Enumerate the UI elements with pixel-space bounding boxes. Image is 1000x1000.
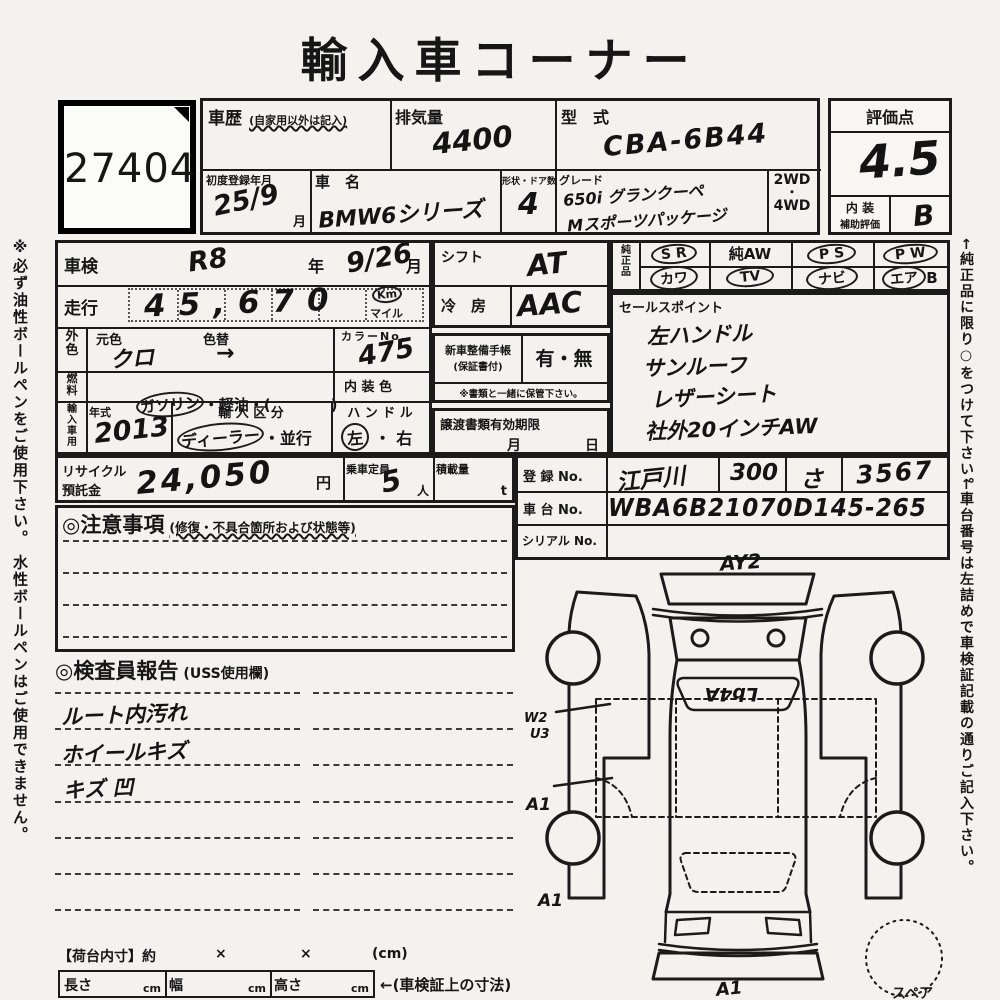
bed-dimensions-line: 【荷台内寸】約 × × (cm) <box>58 946 478 966</box>
drive-4wd: 4WD <box>767 198 817 214</box>
service-book-label-2: (保証書付) <box>435 358 521 373</box>
load-label: 積載量 <box>436 461 469 477</box>
rear-bumper-lip <box>653 609 822 616</box>
registration-row: 登 録 No. 江戸川 300 さ 3567 <box>518 458 947 493</box>
genuine-leather: カワ <box>649 264 699 292</box>
diagram-mark-a1-left-top: A1 <box>524 795 551 815</box>
recycle-cell: リサイクル 預託金 24,050 円 <box>58 458 345 500</box>
registration-block: 登 録 No. 江戸川 300 さ 3567 車 台 No. WBA6B2107… <box>515 455 950 560</box>
inspector-item-2: ホイールキズ <box>61 735 188 769</box>
shift-aircon-box: シフト AT 冷 房 AAC <box>432 240 610 328</box>
inspector-line <box>313 873 513 875</box>
registration-class: 300 <box>730 460 778 486</box>
right-wheel-front <box>871 812 923 864</box>
inspector-line <box>55 837 300 839</box>
mileage-mile-unit: マイル <box>370 305 403 321</box>
fuel-label-cell: 燃料 <box>58 371 88 401</box>
aircon-value: AAC <box>516 285 583 323</box>
recycle-unit: 円 <box>316 472 331 493</box>
sales-point-3: レザーシート <box>650 378 777 415</box>
genuine-navi: ナビ <box>805 264 859 292</box>
genuine-cell-pw: P W <box>873 243 947 268</box>
interior-label-2: 補助評価 <box>831 216 889 231</box>
mileage-row: 走行 Km マイル 45,670 <box>58 285 429 329</box>
genuine-airbag: エア <box>881 264 927 292</box>
body-side-left <box>666 660 677 912</box>
auction-sheet: 輸入車コーナー ※必ず油性ボールペンをご使用下さい。 水性ボールペンはご使用でき… <box>0 0 1000 1000</box>
load-cell: 積載量 t <box>433 458 512 500</box>
keep-note: ※書類と一緒に保管下さい。 <box>435 382 607 400</box>
service-book-value: 有・無 <box>535 348 592 370</box>
genuine-cell-aw: 純AW <box>709 243 793 268</box>
recycle-row: リサイクル 預託金 24,050 円 乗車定員 5 人 積載量 t <box>55 455 515 503</box>
history-note: (自家用以外は記入) <box>249 114 347 127</box>
width-label: 幅 <box>169 975 183 995</box>
import-type-selected: ディーラー <box>176 419 265 454</box>
import-label-cell: 輸入車用 <box>58 401 88 452</box>
exterior-color-label: 外色 <box>65 330 79 359</box>
aircon-label: 冷 房 <box>441 295 486 316</box>
height-label: 高さ <box>274 975 302 995</box>
inspector-line <box>313 764 513 766</box>
model-code-cell: 型 式 CBA-6B44 <box>555 101 821 171</box>
registration-kana: さ <box>800 460 823 494</box>
reg-divider-2 <box>785 458 787 491</box>
chassis-value: WBA6B21070D145-265 <box>608 493 927 522</box>
transfer-docs-label: 譲渡書類有効期限 <box>440 414 540 433</box>
length-cell: 長さ cm <box>60 972 167 996</box>
displacement-label: 排気量 <box>395 104 443 128</box>
diagram-mark-u3: U3 <box>530 727 550 742</box>
diagram-mark-a1-left-bottom: A1 <box>536 891 563 911</box>
left-wheel-front <box>547 812 599 864</box>
reg-divider-1 <box>718 458 720 491</box>
registration-number: 3567 <box>855 455 934 489</box>
first-registration-cell: 初度登録年月 25/9 月 <box>203 169 312 232</box>
genuine-ps: P S <box>807 242 858 266</box>
digit-divider <box>365 290 367 320</box>
sales-points-label: セールスポイント <box>619 297 723 316</box>
handle-cell: ハ ン ド ル 左 ・ 右 <box>331 401 429 452</box>
handle-right: 右 <box>396 429 412 448</box>
rating-label: 評価点 <box>831 101 949 133</box>
rating-score: 4.5 <box>857 130 942 190</box>
transfer-day: 日 <box>585 435 599 455</box>
inspector-line <box>313 728 513 730</box>
body-side-right <box>799 660 810 912</box>
interior-color-label: 内 装 色 <box>344 376 392 395</box>
headlight-right <box>766 918 801 935</box>
right-margin-note-genuine: ←純正品に限り○をつけて下さい。 <box>956 238 976 488</box>
exterior-color-label-cell: 外色 <box>58 327 88 371</box>
genuine-tv: TV <box>725 265 775 289</box>
left-margin-note: ※必ず油性ボールペンをご使用下さい。 水性ボールペンはご使用できません。 <box>10 238 31 798</box>
car-name-label: 車 名 <box>315 171 360 192</box>
shaken-row: 車検 R8 年 9/26 月 <box>58 243 429 287</box>
headlight-left <box>675 918 710 935</box>
trunk-panel <box>670 618 806 660</box>
sales-point-4: 社外20インチAW <box>645 410 818 446</box>
car-name-value: BMW6シリーズ <box>317 191 484 234</box>
capacity-cell: 乗車定員 5 人 <box>343 458 435 500</box>
interior-rating-label-cell: 内 装 補助評価 <box>831 197 891 232</box>
genuine-cell-ps: P S <box>791 243 875 268</box>
handle-label: ハ ン ド ル <box>331 402 429 421</box>
roof-door-lines <box>676 699 778 817</box>
genuine-label: 純正品 <box>621 245 632 278</box>
inspector-item-1: ルート内汚れ <box>61 697 188 731</box>
aircon-divider <box>510 285 512 325</box>
drive-cell: 2WD ・ 4WD <box>767 169 817 232</box>
model-year-cell: 年式 2013 <box>86 401 173 452</box>
import-row: 輸入車用 年式 2013 輸 入 区 分 ディーラー・並行 ハ ン ド ル 左 … <box>58 401 429 452</box>
capacity-unit: 人 <box>417 482 429 499</box>
handle-dot: ・ <box>375 429 391 448</box>
dim-x1: × <box>215 946 227 962</box>
interior-rating-value: B <box>911 198 936 233</box>
inspector-line <box>55 909 300 911</box>
genuine-pw: P W <box>882 242 938 267</box>
vehicle-header-table: 車歴 (自家用以外は記入) 排気量 4400 型 式 CBA-6B44 初度登録… <box>200 98 820 235</box>
colorno-cell-divider <box>333 327 335 371</box>
width-cell: 幅 cm <box>165 972 272 996</box>
handle-selected: 左 <box>340 422 370 452</box>
import-type-options: ディーラー・並行 <box>177 423 312 451</box>
transfer-docs-box: 譲渡書類有効期限 月 日 <box>432 408 610 455</box>
genuine-aw: 純AW <box>729 245 771 263</box>
handle-options: 左 ・ 右 <box>341 423 412 451</box>
diagram-mark-ay2: AY2 <box>717 552 762 576</box>
shaken-month-unit: 月 <box>406 253 422 277</box>
fuel-label: 燃料 <box>66 373 78 397</box>
page-title: 輸入車コーナー <box>290 22 710 91</box>
inspector-line <box>55 873 300 875</box>
base-color-value: クロ <box>109 340 155 375</box>
shift-row: シフト AT <box>435 243 607 287</box>
genuine-sr: S R <box>650 242 697 266</box>
dim-x2: × <box>300 946 312 962</box>
mileage-km-unit: Km <box>371 285 402 305</box>
transfer-month: 月 <box>507 435 521 455</box>
model-code-value: CBA-6B44 <box>602 118 770 163</box>
trunk-detail <box>768 630 784 646</box>
genuine-cell-tv: TV <box>709 266 793 289</box>
height-cell: 高さ cm <box>270 972 373 996</box>
mileage-label: 走行 <box>64 294 98 319</box>
right-margin-note-chassis: ←車台番号は左詰めで車検証記載の通りご記入下さい。 <box>956 478 976 873</box>
import-type-label: 輸 入 区 分 <box>171 402 331 421</box>
rear-bumper <box>661 574 814 604</box>
notes-note: (修復・不具合箇所および状態等) <box>169 520 355 535</box>
sales-points-box: セールスポイント 左ハンドル サンルーフ レザーシート 社外20インチAW <box>610 292 950 455</box>
doors-value: 4 <box>518 187 539 222</box>
displacement-cell: 排気量 4400 <box>390 101 557 171</box>
inspector-line <box>313 909 513 911</box>
load-unit: t <box>501 484 507 499</box>
shaken-label: 車検 <box>64 252 98 277</box>
exterior-color-row: 外色 元色 クロ 色替 → カラーNo. 475 <box>58 327 429 373</box>
length-unit: cm <box>143 982 161 995</box>
height-unit: cm <box>351 982 369 995</box>
notes-line-1 <box>63 540 507 542</box>
reg-divider-3 <box>841 458 843 491</box>
doors-label: 形状・ドア数 <box>502 174 556 187</box>
drive-dot: ・ <box>767 188 817 198</box>
service-book-label-1: 新車整備手帳 <box>435 342 521 358</box>
trunk-detail <box>692 630 708 646</box>
inspector-header: ◎検査員報告 <box>55 659 178 683</box>
shaken-dimensions-note: ←(車検証上の寸法) <box>380 974 511 995</box>
sales-point-2: サンルーフ <box>643 349 748 383</box>
main-left-block: 車検 R8 年 9/26 月 走行 Km マイル 45,670 外色 <box>55 240 432 455</box>
notes-header: ◎注意事項 <box>62 509 164 539</box>
fuel-row: 燃料 ガソリン・軽油・( ) 内 装 色 <box>58 371 429 403</box>
genuine-cell-sr: S R <box>639 243 711 268</box>
interior-label-1: 内 装 <box>831 199 889 216</box>
inspector-line <box>313 692 513 694</box>
inspector-item-3: キズ 凹 <box>62 771 134 805</box>
corner-triangle-icon <box>174 107 189 122</box>
inspector-report: ◎検査員報告 (USS使用欄) ルート内汚れ ホイールキズ キズ 凹 <box>55 655 515 940</box>
import-type-rest: ・並行 <box>264 429 312 448</box>
windshield <box>681 853 796 892</box>
service-book-label-cell: 新車整備手帳 (保証書付) <box>435 336 523 384</box>
notes-line-3 <box>63 604 507 606</box>
service-book-value-cell: 有・無 <box>521 336 607 384</box>
genuine-airbag-b: B <box>926 269 937 287</box>
dimensions-table: 長さ cm 幅 cm 高さ cm <box>58 970 375 998</box>
shift-label: シフト <box>441 247 483 267</box>
car-name-cell: 車 名 BMW6シリーズ <box>310 169 502 232</box>
diagram-mark-w2: W2 <box>524 711 547 726</box>
model-code-label: 型 式 <box>561 104 609 128</box>
damage-tick <box>556 704 610 712</box>
model-year-value: 2013 <box>93 411 171 450</box>
chassis-label: 車 台 No. <box>518 491 608 524</box>
import-type-cell: 輸 入 区 分 ディーラー・並行 <box>171 401 333 452</box>
first-registration-unit: 月 <box>293 211 306 230</box>
doors-cell: 形状・ドア数 4 <box>500 169 557 232</box>
roof-corner-arcs <box>596 778 876 817</box>
shift-value: AT <box>525 245 568 283</box>
diagram-mark-window: Lb4A <box>704 683 758 705</box>
repaint-value: → <box>216 341 234 366</box>
service-book-box: 新車整備手帳 (保証書付) 有・無 ※書類と一緒に保管下さい。 <box>432 333 610 403</box>
length-label: 長さ <box>64 975 92 995</box>
shaken-year-unit: 年 <box>308 253 324 277</box>
registration-label: 登 録 No. <box>518 458 608 491</box>
spare-label: スペア <box>892 986 933 1000</box>
history-label: 車歴 <box>208 104 242 129</box>
mileage-value: 45,670 <box>143 282 342 325</box>
rating-box: 評価点 4.5 内 装 補助評価 B <box>828 98 952 235</box>
diagram-mark-a1-front: A1 <box>713 977 744 1000</box>
notes-line-4 <box>63 636 507 638</box>
left-wheel-rear <box>547 632 599 684</box>
genuine-cell-navi: ナビ <box>791 266 875 289</box>
aircon-row: 冷 房 AAC <box>435 285 607 325</box>
genuine-cell-airbag: エアB <box>873 266 947 289</box>
width-unit: cm <box>248 982 266 995</box>
dim-cm-note: (cm) <box>372 946 408 962</box>
displacement-value: 4400 <box>430 119 514 161</box>
lot-number-box: 27404 <box>58 100 196 234</box>
grade-cell: グレード 650i グランクーペ Mスポーツパッケージ <box>555 169 769 232</box>
front-bumper-lip <box>659 944 817 950</box>
interior-color-divider <box>333 371 335 401</box>
chassis-row: 車 台 No. WBA6B21070D145-265 <box>518 491 947 526</box>
inspector-line <box>55 692 300 694</box>
notes-box: ◎注意事項 (修復・不具合箇所および状態等) <box>55 505 515 652</box>
right-wheel-rear <box>871 632 923 684</box>
genuine-cell-leather: カワ <box>639 266 711 289</box>
spare-tire-circle <box>866 920 942 996</box>
front-fascia <box>665 912 811 942</box>
inspector-line <box>313 801 513 803</box>
history-cell: 車歴 (自家用以外は記入) <box>203 101 392 171</box>
inspector-line <box>313 837 513 839</box>
import-label: 輸入車用 <box>67 404 78 448</box>
notes-line-2 <box>63 572 507 574</box>
inspector-note: (USS使用欄) <box>183 666 269 682</box>
shaken-year-value: R8 <box>186 242 230 278</box>
capacity-value: 5 <box>378 462 405 499</box>
bed-dimensions-label: 【荷台内寸】約 <box>58 946 156 966</box>
shaken-date-value: 9/26 <box>344 237 415 279</box>
lot-number: 27404 <box>64 146 190 192</box>
genuine-parts-grid: 純正品 S R 純AW P S P W カワ TV ナビ エアB <box>610 240 950 292</box>
sales-point-1: 左ハンドル <box>647 317 753 351</box>
genuine-label-cell: 純正品 <box>613 243 641 289</box>
car-diagram: AY2 Lb4A W2 U3 A1 A1 A1 スペア <box>520 552 950 1000</box>
